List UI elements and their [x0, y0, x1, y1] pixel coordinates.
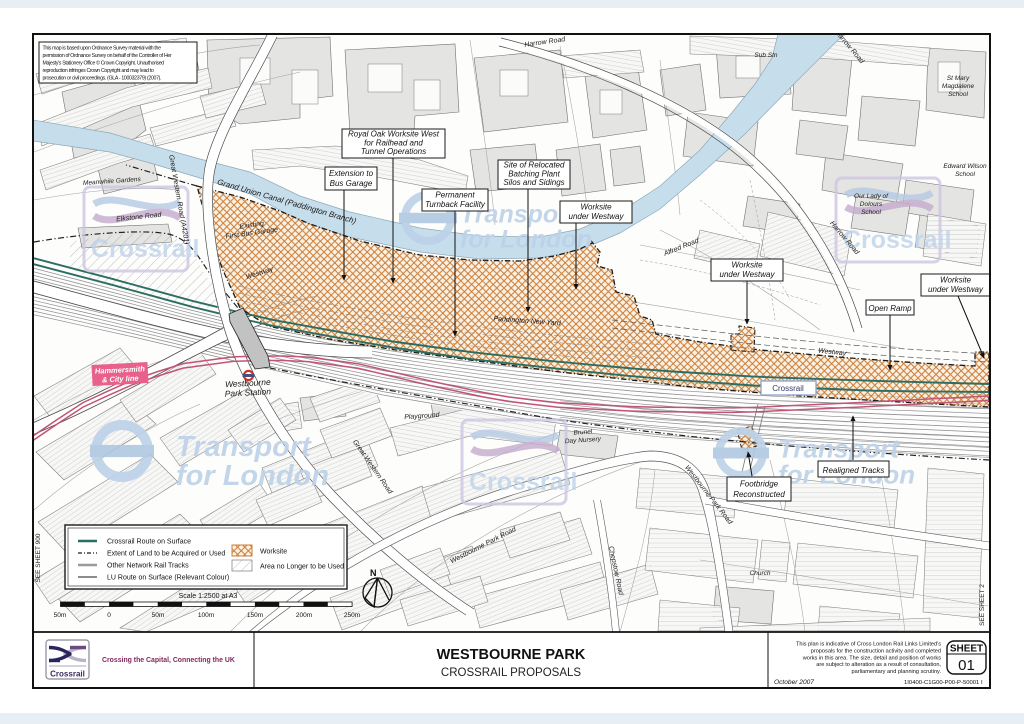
svg-text:Turnback Facility: Turnback Facility: [425, 200, 486, 209]
svg-text:St Mary: St Mary: [947, 75, 970, 82]
svg-text:proposals for the construction: proposals for the construction activity …: [811, 648, 941, 654]
svg-text:Transport: Transport: [176, 431, 312, 463]
svg-text:Majesty's Stationery Office ©: Majesty's Stationery Office © Crown Copy…: [43, 60, 165, 67]
svg-text:Crossrail: Crossrail: [469, 468, 577, 496]
svg-text:permission of Ordnance Survey: permission of Ordnance Survey on behalf …: [43, 53, 172, 59]
svg-text:under Westway: under Westway: [720, 270, 776, 279]
svg-text:Area no Longer to be Used: Area no Longer to be Used: [260, 564, 344, 571]
svg-text:This plan is indicative of Cro: This plan is indicative of Cross London …: [796, 642, 941, 648]
svg-text:for Railhead and: for Railhead and: [364, 138, 423, 147]
svg-text:Other Network Rail Tracks: Other Network Rail Tracks: [107, 563, 189, 570]
svg-text:& City line: & City line: [102, 374, 139, 385]
svg-text:50m: 50m: [54, 612, 67, 619]
svg-text:Crossrail: Crossrail: [50, 670, 85, 679]
svg-text:works in this area. The size,: works in this area. The size, detail and…: [802, 655, 941, 661]
svg-text:Silos and Sidings: Silos and Sidings: [503, 178, 564, 187]
svg-text:Extent of Land to be Acquired: Extent of Land to be Acquired or Used: [107, 551, 225, 558]
svg-text:200m: 200m: [296, 612, 312, 619]
svg-text:under Westway: under Westway: [928, 285, 984, 294]
svg-text:SEE SHEET 2: SEE SHEET 2: [979, 584, 986, 626]
svg-text:Tunnel Operations: Tunnel Operations: [361, 147, 426, 156]
svg-text:Church: Church: [750, 570, 771, 577]
svg-text:Footbridge: Footbridge: [740, 480, 779, 489]
svg-text:150m: 150m: [247, 612, 263, 619]
svg-text:Reconstructed: Reconstructed: [733, 490, 785, 499]
svg-text:LU Route on Surface (Relevant: LU Route on Surface (Relevant Colour): [107, 575, 229, 582]
svg-text:parliamentary and planning scr: parliamentary and planning scrutiny.: [852, 669, 942, 675]
svg-text:Permanent: Permanent: [435, 191, 475, 200]
svg-text:Our Lady of: Our Lady of: [854, 193, 889, 200]
svg-text:Batching Plant: Batching Plant: [508, 169, 560, 178]
svg-text:Worksite: Worksite: [940, 276, 972, 285]
svg-text:100m: 100m: [198, 612, 214, 619]
svg-text:Realigned Tracks: Realigned Tracks: [823, 466, 885, 475]
svg-text:1I0400-C1G00-P00-P-50001: 1I0400-C1G00-P00-P-50001: [904, 680, 979, 686]
svg-text:School: School: [955, 171, 975, 178]
svg-text:for London: for London: [176, 460, 329, 492]
svg-text:Extension to: Extension to: [329, 169, 374, 178]
svg-text:Worksite: Worksite: [260, 549, 287, 556]
svg-text:CROSSRAIL PROPOSALS: CROSSRAIL PROPOSALS: [441, 667, 582, 679]
svg-text:reproduction infringes Crown C: reproduction infringes Crown Copyright a…: [43, 68, 154, 74]
svg-text:Bus Garage: Bus Garage: [330, 179, 373, 188]
svg-text:Worksite: Worksite: [580, 203, 612, 212]
svg-text:under Westway: under Westway: [569, 212, 625, 221]
svg-text:Scale 1:2500 at A3: Scale 1:2500 at A3: [179, 593, 238, 600]
svg-text:Crossrail: Crossrail: [772, 384, 804, 393]
svg-text:are subject to alteration as a: are subject to alteration as a result of…: [816, 662, 941, 668]
svg-text:Worksite: Worksite: [731, 261, 763, 270]
svg-text:Crossing the Capital, Connecti: Crossing the Capital, Connecting the UK: [102, 657, 235, 664]
svg-text:Edward Wilson: Edward Wilson: [943, 163, 987, 170]
svg-text:0: 0: [107, 612, 111, 619]
svg-text:This map is based upon Ordnanc: This map is based upon Ordnance Survey m…: [43, 46, 162, 52]
svg-text:Sub Stn: Sub Stn: [754, 52, 778, 59]
svg-text:Dolours: Dolours: [860, 201, 883, 208]
svg-text:Brunel: Brunel: [573, 428, 593, 436]
svg-text:WESTBOURNE PARK: WESTBOURNE PARK: [437, 647, 586, 663]
svg-text:October 2007: October 2007: [774, 679, 814, 686]
svg-text:for London: for London: [460, 226, 592, 254]
svg-text:250m: 250m: [344, 612, 360, 619]
svg-text:Crossrail Route on Surface: Crossrail Route on Surface: [107, 539, 191, 546]
svg-text:School: School: [861, 209, 881, 216]
svg-text:Magdalene: Magdalene: [942, 83, 975, 90]
svg-text:N: N: [370, 568, 377, 578]
svg-text:01: 01: [958, 657, 975, 674]
svg-text:SEE SHEET 900: SEE SHEET 900: [35, 533, 42, 582]
svg-text:School: School: [948, 91, 968, 98]
svg-text:Open Ramp: Open Ramp: [868, 304, 912, 313]
svg-text:SHEET: SHEET: [950, 644, 983, 655]
svg-text:50m: 50m: [152, 612, 165, 619]
svg-text:prosecution or civil proceedin: prosecution or civil proceedings. (GLA -…: [43, 76, 162, 82]
